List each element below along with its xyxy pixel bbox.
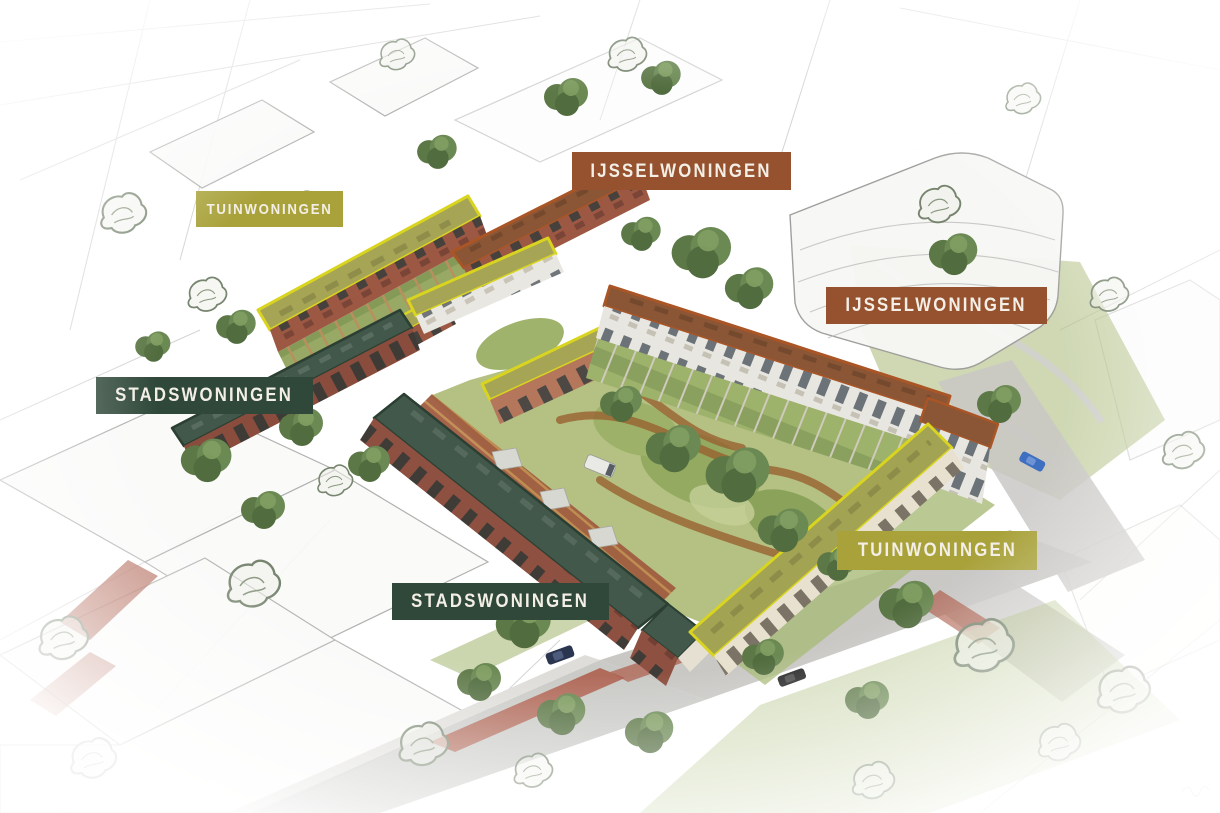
label-text: IJSSELWONINGEN (846, 296, 1027, 315)
signature-scribble (1182, 787, 1209, 797)
label-text: STADSWONINGEN (412, 592, 590, 611)
masterplan-rendering: TUINWONINGEN IJSSELWONINGEN IJSSELWONING… (0, 0, 1220, 813)
label-ijsselwoningen-east: IJSSELWONINGEN (826, 287, 1047, 324)
label-stadswoningen-west: STADSWONINGEN (96, 377, 313, 414)
label-ijsselwoningen-north: IJSSELWONINGEN (572, 152, 791, 190)
label-text: TUINWONINGEN (206, 202, 332, 217)
label-tuinwoningen-northwest: TUINWONINGEN (196, 191, 343, 227)
label-text: STADSWONINGEN (116, 386, 294, 405)
label-text: IJSSELWONINGEN (591, 162, 772, 181)
label-tuinwoningen-southeast: TUINWONINGEN (837, 531, 1037, 570)
label-text: TUINWONINGEN (857, 541, 1016, 560)
label-stadswoningen-south: STADSWONINGEN (392, 583, 609, 620)
